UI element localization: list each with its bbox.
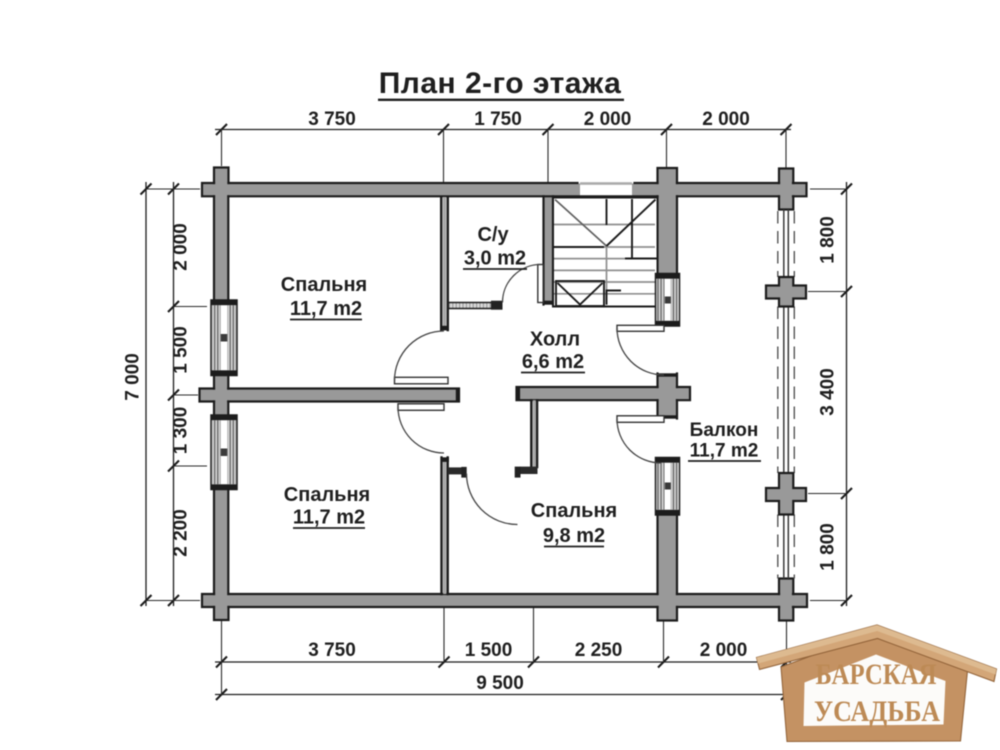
svg-text:Спальня: Спальня xyxy=(281,274,367,296)
svg-text:3 750: 3 750 xyxy=(308,640,356,661)
svg-text:1 500: 1 500 xyxy=(465,640,513,661)
svg-text:11,7 m2: 11,7 m2 xyxy=(290,298,362,320)
svg-text:С/у: С/у xyxy=(477,224,509,246)
svg-text:3,0 m2: 3,0 m2 xyxy=(464,248,526,270)
svg-text:Спальня: Спальня xyxy=(531,500,617,522)
svg-text:2 000: 2 000 xyxy=(702,109,750,130)
svg-text:План 2-го этажа: План 2-го этажа xyxy=(379,67,622,100)
svg-text:2 000: 2 000 xyxy=(700,640,748,661)
svg-text:2 200: 2 200 xyxy=(171,509,192,557)
svg-text:7 000: 7 000 xyxy=(123,353,144,401)
svg-text:2 000: 2 000 xyxy=(584,109,632,130)
svg-text:9,8 m2: 9,8 m2 xyxy=(543,525,605,547)
svg-text:УСАДЬБА: УСАДЬБА xyxy=(814,695,940,728)
svg-text:2 250: 2 250 xyxy=(575,640,623,661)
svg-text:1 750: 1 750 xyxy=(474,109,522,130)
svg-text:1 800: 1 800 xyxy=(818,216,839,264)
svg-text:Балкон: Балкон xyxy=(690,420,759,441)
svg-text:11,7 m2: 11,7 m2 xyxy=(293,507,365,529)
svg-text:3 750: 3 750 xyxy=(308,109,356,130)
svg-text:1 500: 1 500 xyxy=(171,326,192,374)
svg-text:Холл: Холл xyxy=(530,329,580,351)
svg-text:9 500: 9 500 xyxy=(476,673,524,694)
svg-text:1 300: 1 300 xyxy=(171,407,192,455)
svg-text:2 000: 2 000 xyxy=(171,223,192,271)
svg-text:Спальня: Спальня xyxy=(284,484,370,506)
svg-text:3 400: 3 400 xyxy=(818,368,839,416)
svg-text:6,6 m2: 6,6 m2 xyxy=(522,351,584,373)
svg-text:БАРСКАЯ: БАРСКАЯ xyxy=(816,658,937,691)
svg-text:11,7 m2: 11,7 m2 xyxy=(690,441,759,462)
svg-text:1 800: 1 800 xyxy=(818,523,839,571)
